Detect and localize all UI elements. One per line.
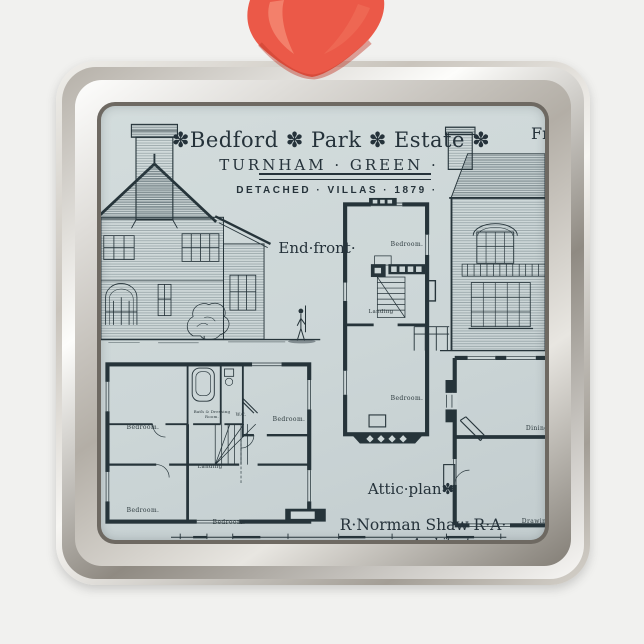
ff-bedroom-bottom-mid-label: Bedroom. <box>213 519 246 526</box>
garden-fence <box>414 327 449 351</box>
attic-landing-label: Landing <box>369 309 394 315</box>
wc-fixture <box>224 369 233 386</box>
ff-bedroom-top-right-label: Bedroom. <box>273 416 306 423</box>
front-elevation-label: Front <box>531 124 545 143</box>
architect-title: Architect. <box>412 535 474 540</box>
corner-fireplace <box>243 398 258 413</box>
attic-bedroom-top-label: Bedroom. <box>391 241 424 248</box>
attic-plan-drawing <box>344 198 436 444</box>
frame-bevel-inner: ✽Bedford ✽ Park ✽ Estate ✽ TURNHAM · GRE… <box>75 80 571 566</box>
ff-bedroom-top-left-label: Bedroom. <box>127 424 160 431</box>
product-photo: ✽Bedford ✽ Park ✽ Estate ✽ TURNHAM · GRE… <box>0 0 644 644</box>
chimney <box>131 124 177 228</box>
ground-floor-plan-drawing <box>444 357 545 527</box>
ribbon <box>240 0 396 86</box>
human-figure <box>288 306 316 344</box>
plate-subtitle: TURNHAM · GREEN · <box>219 156 438 174</box>
first-floor-plan-drawing <box>106 363 326 523</box>
metal-ornament-frame: ✽Bedford ✽ Park ✽ Estate ✽ TURNHAM · GRE… <box>56 61 590 585</box>
ff-bath-label-line2: Room. <box>205 415 219 420</box>
ff-bedroom-bottom-left-label: Bedroom. <box>127 507 160 514</box>
gf-dining-room-label: Dining Room. <box>526 425 545 432</box>
architect-name: R·Norman Shaw R·A· <box>340 516 507 534</box>
attic-plan-caption: Attic·plan✽ <box>368 480 454 498</box>
plate-caption: DETACHED · VILLAS · 1879 · <box>236 185 438 196</box>
gf-drawing-room-label: Drawing Room. <box>522 518 545 525</box>
frame-bevel-outer: ✽Bedford ✽ Park ✽ Estate ✽ TURNHAM · GRE… <box>62 67 584 579</box>
end-front-label: End·front· <box>278 239 355 257</box>
attic-bedroom-bottom-label: Bedroom. <box>391 395 424 402</box>
architectural-print: ✽Bedford ✽ Park ✽ Estate ✽ TURNHAM · GRE… <box>101 106 545 540</box>
plate-title: ✽Bedford ✽ Park ✽ Estate ✽ <box>172 128 490 152</box>
ff-wc-label: W.C. <box>236 414 247 419</box>
subtitle-underline <box>259 173 431 180</box>
ff-landing-label: Landing <box>198 464 223 470</box>
bath-tub <box>192 368 214 401</box>
